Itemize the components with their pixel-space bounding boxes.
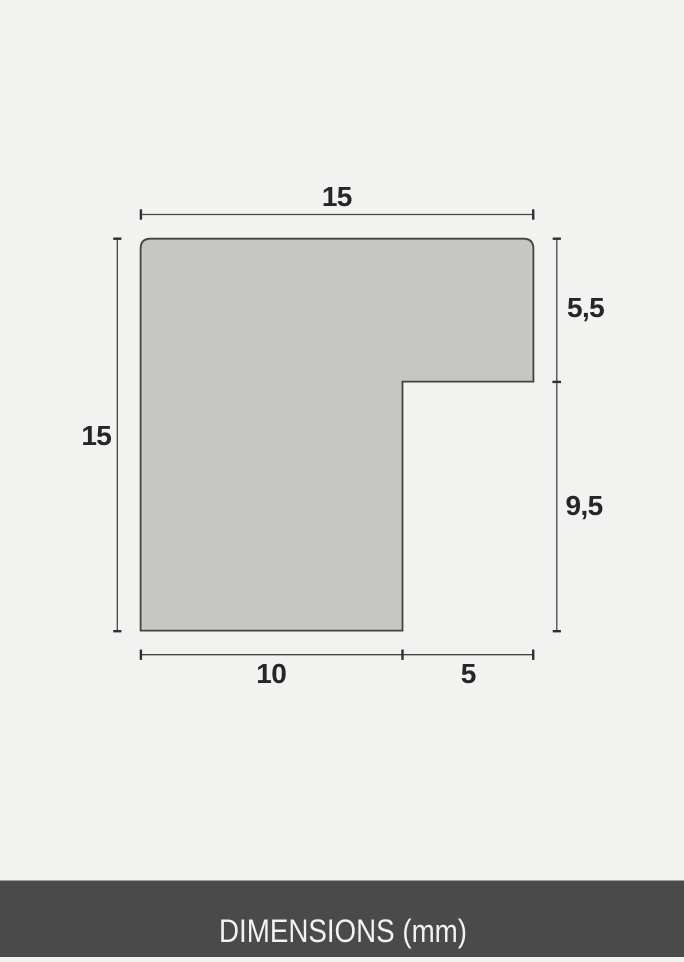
svg-text:10: 10	[256, 658, 286, 689]
svg-text:5,5: 5,5	[567, 292, 604, 323]
svg-text:9,5: 9,5	[566, 490, 603, 521]
svg-text:DIMENSIONS (mm): DIMENSIONS (mm)	[219, 913, 467, 949]
svg-text:15: 15	[81, 420, 111, 451]
svg-text:5: 5	[461, 658, 476, 689]
svg-text:15: 15	[322, 181, 352, 212]
